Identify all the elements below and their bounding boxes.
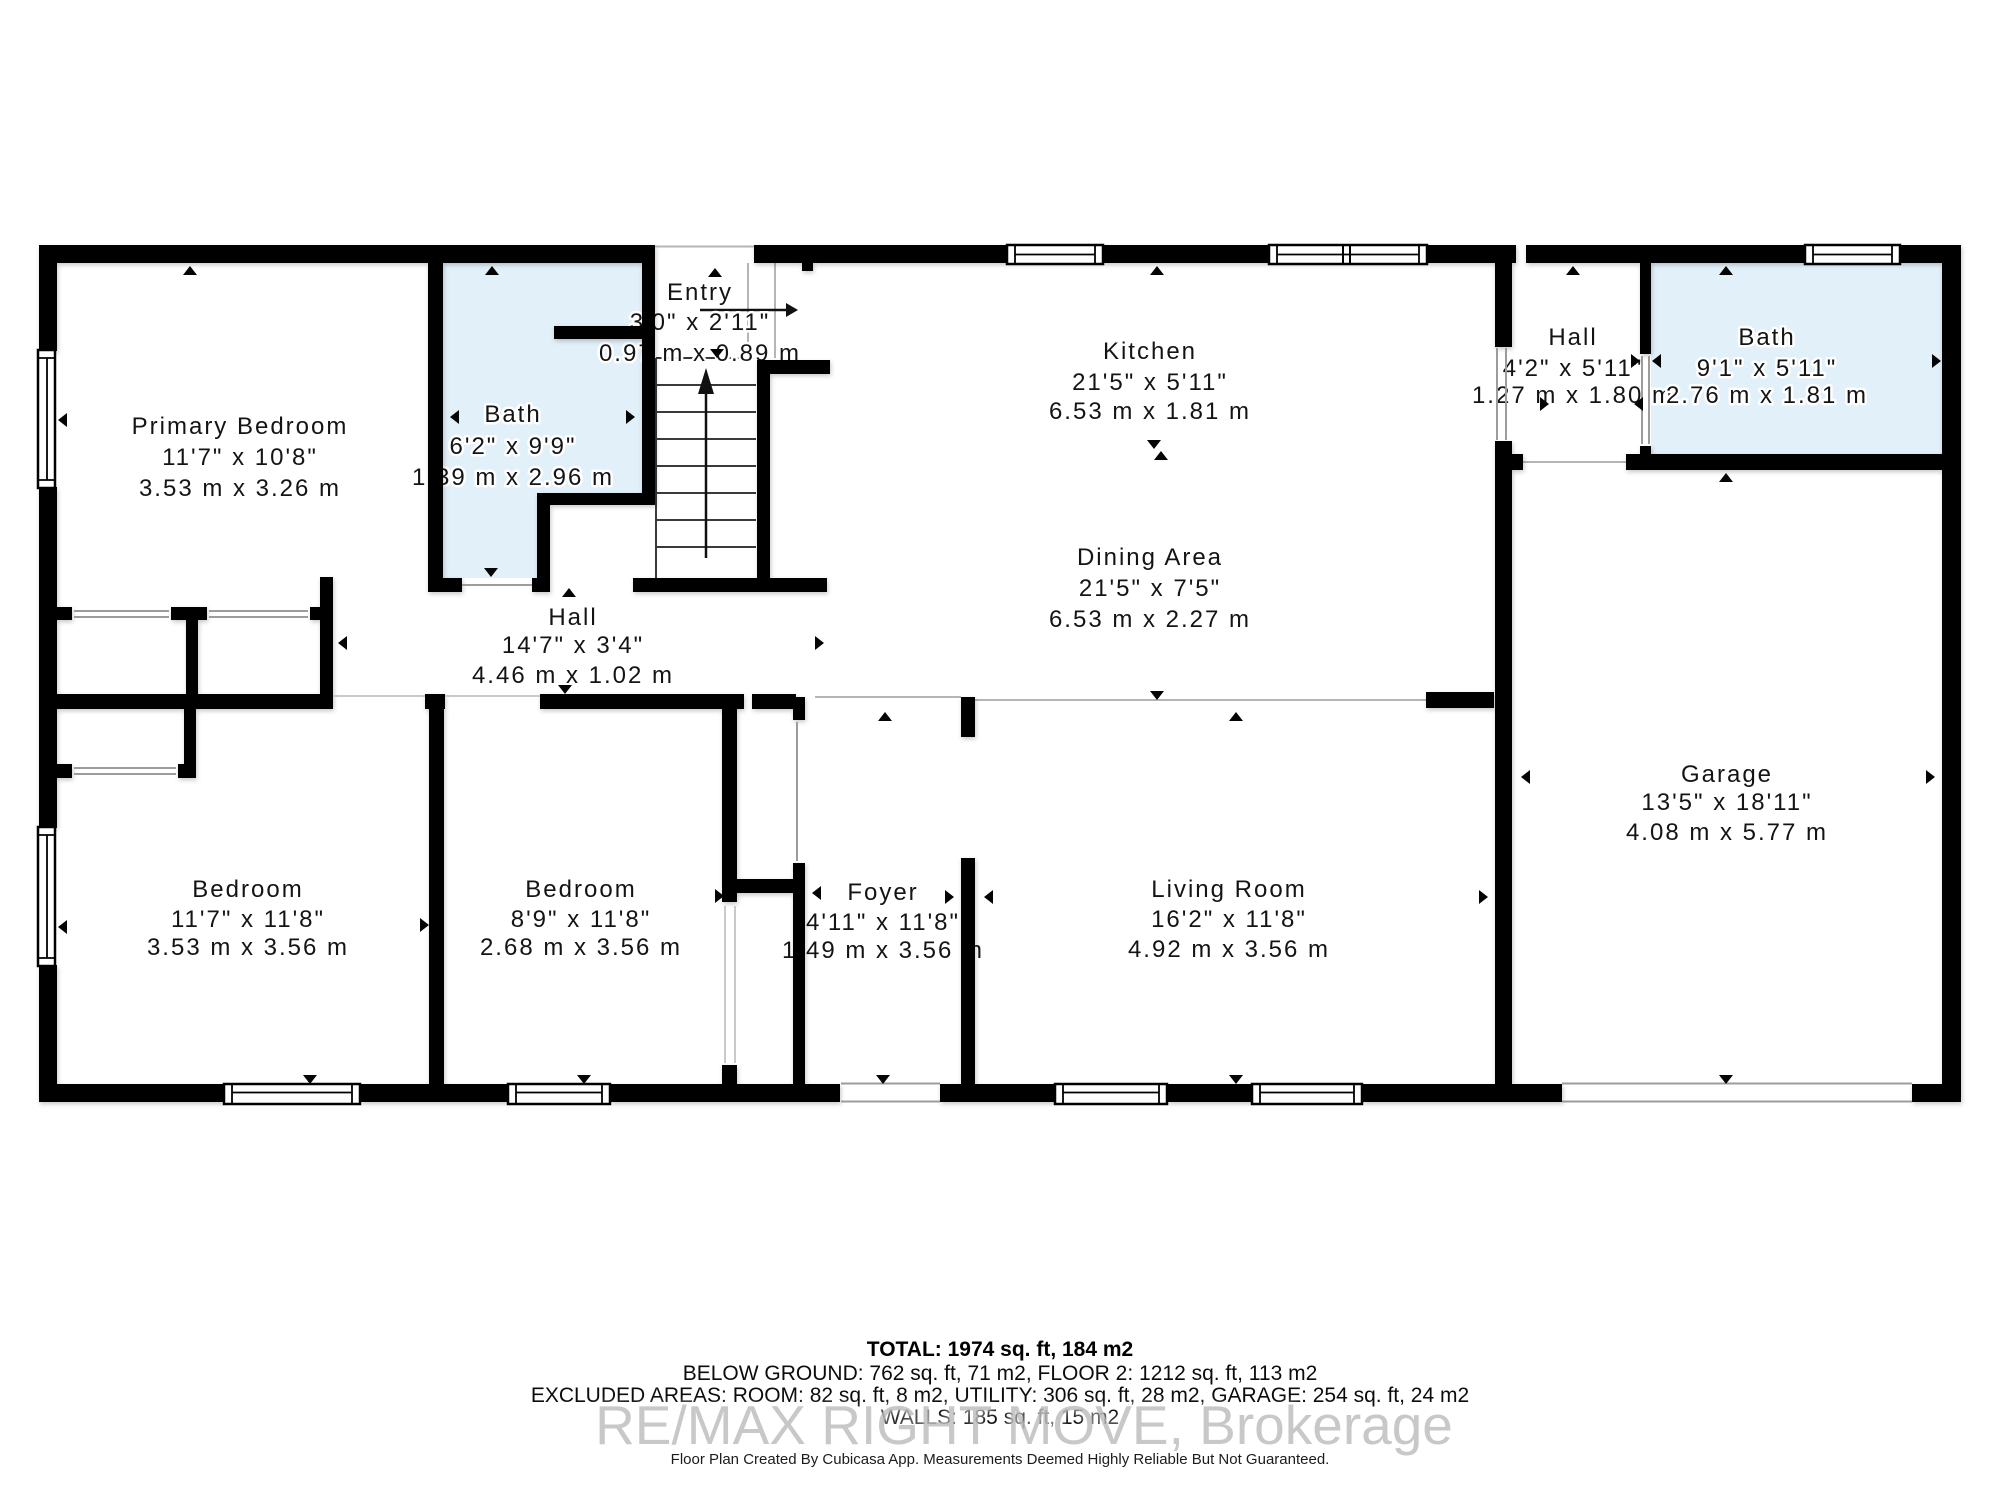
svg-text:3.53 m x 3.26 m: 3.53 m x 3.26 m — [139, 475, 341, 502]
svg-text:21'5" x 7'5": 21'5" x 7'5" — [1079, 575, 1221, 602]
svg-text:3.53 m x 3.56 m: 3.53 m x 3.56 m — [147, 934, 349, 961]
svg-text:13'5" x 18'11": 13'5" x 18'11" — [1641, 789, 1812, 816]
svg-text:2.68 m x 3.56 m: 2.68 m x 3.56 m — [480, 934, 682, 961]
svg-text:Floor Plan Created By Cubicasa: Floor Plan Created By Cubicasa App. Meas… — [671, 1451, 1330, 1468]
svg-text:BELOW GROUND: 762 sq. ft, 71 m: BELOW GROUND: 762 sq. ft, 71 m2, FLOOR 2… — [683, 1362, 1318, 1385]
svg-text:9'1" x 5'11": 9'1" x 5'11" — [1697, 355, 1838, 382]
svg-text:RE/MAX RIGHT MOVE, Brokerage: RE/MAX RIGHT MOVE, Brokerage — [595, 1394, 1453, 1456]
svg-text:Bath: Bath — [484, 401, 541, 428]
svg-text:4.46 m x 1.02 m: 4.46 m x 1.02 m — [472, 662, 674, 689]
svg-text:21'5" x 5'11": 21'5" x 5'11" — [1072, 369, 1228, 396]
svg-text:Living Room: Living Room — [1151, 876, 1306, 903]
svg-text:1.49 m x 3.56 m: 1.49 m x 3.56 m — [782, 937, 984, 964]
svg-text:14'7" x 3'4": 14'7" x 3'4" — [502, 632, 644, 659]
svg-text:8'9" x 11'8": 8'9" x 11'8" — [511, 906, 652, 933]
svg-text:4.08 m x 5.77 m: 4.08 m x 5.77 m — [1626, 819, 1828, 846]
svg-text:Bedroom: Bedroom — [192, 876, 303, 903]
svg-text:Foyer: Foyer — [847, 879, 918, 906]
svg-text:Dining Area: Dining Area — [1077, 544, 1223, 571]
svg-text:11'7" x 11'8": 11'7" x 11'8" — [171, 906, 325, 933]
svg-text:6.53 m x 1.81 m: 6.53 m x 1.81 m — [1049, 398, 1251, 425]
svg-text:4.92 m x 3.56 m: 4.92 m x 3.56 m — [1128, 936, 1330, 963]
svg-text:1.27 m x 1.80 m: 1.27 m x 1.80 m — [1472, 382, 1674, 409]
svg-text:Kitchen: Kitchen — [1103, 338, 1197, 365]
svg-text:6.53 m x 2.27 m: 6.53 m x 2.27 m — [1049, 606, 1251, 633]
svg-text:2.76 m x 1.81 m: 2.76 m x 1.81 m — [1666, 382, 1868, 409]
svg-text:TOTAL: 1974 sq. ft, 184 m2: TOTAL: 1974 sq. ft, 184 m2 — [867, 1338, 1133, 1361]
svg-text:Garage: Garage — [1681, 761, 1773, 788]
svg-text:Bedroom: Bedroom — [525, 876, 636, 903]
svg-text:4'11" x 11'8": 4'11" x 11'8" — [806, 909, 960, 936]
svg-text:Hall: Hall — [548, 604, 597, 631]
svg-text:Hall: Hall — [1548, 324, 1597, 351]
svg-text:Bath: Bath — [1738, 324, 1795, 351]
svg-text:Entry: Entry — [667, 279, 733, 306]
svg-text:Primary Bedroom: Primary Bedroom — [132, 413, 349, 440]
svg-text:11'7" x 10'8": 11'7" x 10'8" — [162, 444, 318, 471]
svg-text:4'2" x 5'11": 4'2" x 5'11" — [1503, 355, 1644, 382]
svg-text:6'2" x 9'9": 6'2" x 9'9" — [450, 433, 577, 460]
svg-text:16'2" x 11'8": 16'2" x 11'8" — [1151, 906, 1307, 933]
